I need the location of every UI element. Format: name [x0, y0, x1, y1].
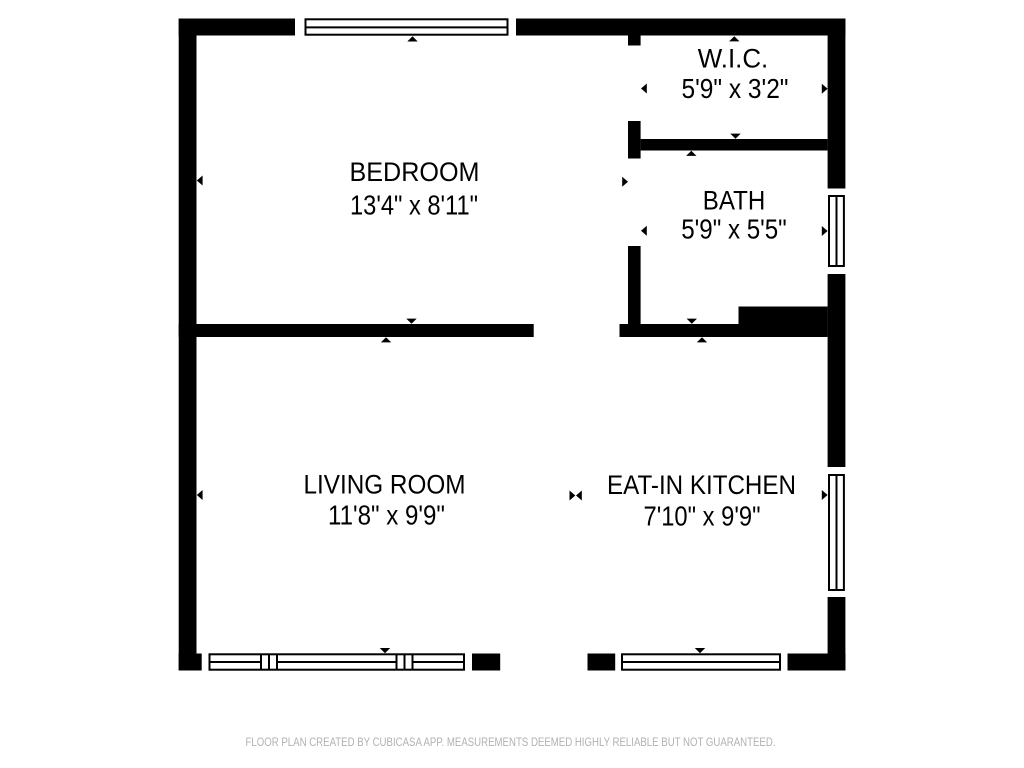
svg-text:7'10" x 9'9": 7'10" x 9'9" — [644, 501, 761, 532]
svg-text:5'9" x 5'5": 5'9" x 5'5" — [681, 214, 787, 245]
svg-text:BEDROOM: BEDROOM — [350, 157, 480, 187]
svg-text:5'9" x 3'2": 5'9" x 3'2" — [682, 73, 789, 104]
svg-text:W.I.C.: W.I.C. — [698, 44, 769, 74]
svg-text:EAT-IN KITCHEN: EAT-IN KITCHEN — [607, 470, 796, 500]
svg-text:FLOOR PLAN CREATED BY CUBICASA: FLOOR PLAN CREATED BY CUBICASA APP. MEAS… — [246, 735, 776, 749]
svg-text:BATH: BATH — [703, 186, 766, 216]
svg-text:LIVING ROOM: LIVING ROOM — [304, 470, 466, 500]
svg-text:11'8" x 9'9": 11'8" x 9'9" — [328, 500, 445, 531]
svg-text:13'4" x 8'11": 13'4" x 8'11" — [350, 190, 478, 221]
